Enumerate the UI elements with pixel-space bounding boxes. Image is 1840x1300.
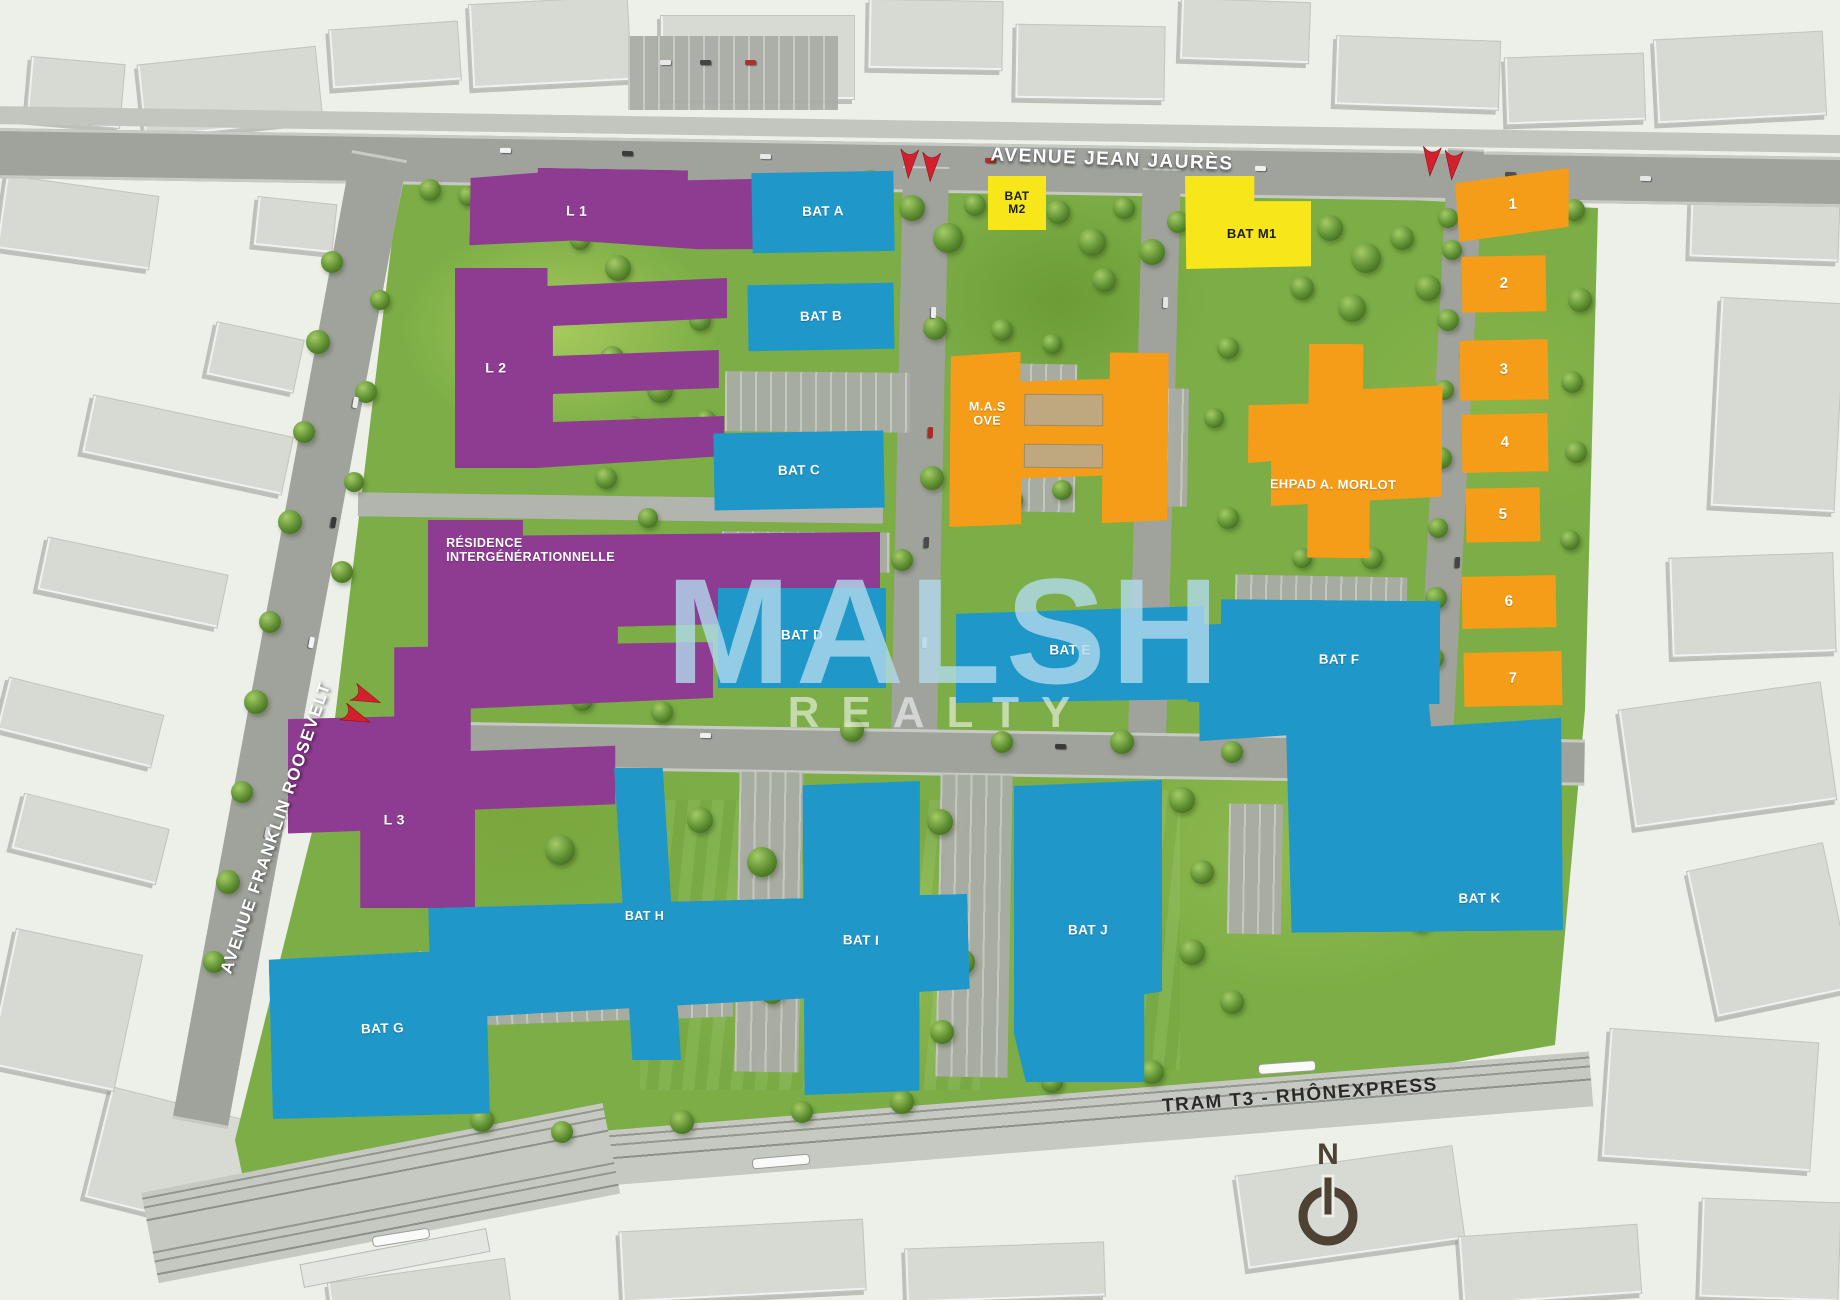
- tree: [370, 290, 390, 310]
- building-lot-5: 5: [1466, 487, 1541, 542]
- city-building: [253, 196, 338, 254]
- tree: [1428, 518, 1448, 538]
- car: [928, 427, 933, 438]
- tree: [1052, 480, 1072, 500]
- tree: [638, 508, 658, 528]
- building-lot-7: 7: [1464, 651, 1563, 707]
- city-building: [10, 793, 170, 886]
- car: [931, 307, 936, 318]
- building-bat-b: BAT B: [747, 283, 894, 352]
- tree: [1290, 276, 1314, 300]
- tree: [344, 472, 364, 492]
- tree: [1565, 441, 1587, 463]
- tree: [890, 1090, 914, 1114]
- tree: [259, 611, 281, 633]
- city-building: [1618, 681, 1838, 828]
- tree: [278, 510, 302, 534]
- tree: [595, 467, 617, 489]
- parking-lot: [628, 36, 838, 110]
- tree: [1190, 860, 1214, 884]
- tree: [1179, 939, 1205, 965]
- watermark-tagline: REALTY: [788, 688, 1093, 738]
- tree: [899, 195, 925, 221]
- north-label: N: [1296, 1138, 1360, 1172]
- city-building: [1668, 552, 1836, 658]
- building-l2: L 2: [455, 268, 727, 468]
- city-building: [1334, 35, 1501, 111]
- tree: [551, 1121, 573, 1143]
- tree: [605, 255, 631, 281]
- city-building: [618, 1219, 866, 1300]
- building-bat-a: BAT A: [751, 171, 894, 253]
- city-building: [0, 175, 159, 271]
- tree: [419, 179, 441, 201]
- car: [1640, 176, 1651, 181]
- car: [1455, 557, 1461, 568]
- building-bat-m2: BAT M2: [988, 176, 1046, 230]
- building-bat-j: BAT J: [1014, 780, 1162, 1082]
- tree: [670, 1110, 694, 1134]
- car: [1255, 166, 1266, 171]
- tree: [923, 316, 947, 340]
- city-building: [0, 676, 164, 768]
- car: [700, 733, 711, 738]
- tree: [1415, 275, 1441, 301]
- city-building: [1458, 1224, 1642, 1300]
- north-compass-icon: [1296, 1172, 1360, 1248]
- tree: [1568, 288, 1592, 312]
- tree: [1442, 240, 1462, 260]
- tree: [1351, 243, 1381, 273]
- building-lot-4: 4: [1462, 413, 1549, 472]
- city-building: [1504, 53, 1646, 126]
- city-building: [205, 321, 304, 394]
- tree: [1042, 334, 1062, 354]
- car: [1055, 744, 1066, 749]
- city-building: [1653, 31, 1827, 125]
- car: [1163, 297, 1168, 308]
- tree: [791, 1101, 813, 1123]
- masterplan-map: L 1 L 2 RÉSIDENCE INTERGÉNÉRATIONNELLE L…: [0, 0, 1840, 1300]
- tree: [1110, 730, 1134, 754]
- tree: [1204, 408, 1224, 428]
- tree: [1113, 197, 1135, 219]
- tree: [964, 194, 986, 216]
- car: [700, 60, 711, 65]
- tree: [1078, 228, 1106, 256]
- building-lot-3: 3: [1459, 339, 1548, 401]
- tree: [1169, 787, 1195, 813]
- tree: [216, 870, 240, 894]
- tree: [747, 847, 777, 877]
- car: [745, 60, 756, 65]
- tree: [920, 466, 944, 490]
- building-lot-2: 2: [1462, 255, 1547, 312]
- tree: [1139, 239, 1165, 265]
- tree: [1390, 226, 1414, 250]
- tree: [1217, 507, 1239, 529]
- tree: [1560, 530, 1580, 550]
- city-building: [1686, 842, 1840, 1018]
- courtyard-structure: [1024, 394, 1103, 426]
- city-building: [36, 536, 228, 628]
- tree: [1217, 337, 1239, 359]
- tree: [1046, 200, 1070, 224]
- city-building: [867, 0, 1003, 71]
- city-building: [328, 21, 462, 90]
- tree: [930, 1020, 954, 1044]
- tree: [1438, 208, 1458, 228]
- city-building: [1710, 297, 1840, 513]
- access-arrows-icon: [1417, 144, 1472, 182]
- city-building: [1179, 0, 1311, 64]
- car: [500, 148, 511, 153]
- city-building: [468, 0, 632, 89]
- parking-lot: [725, 371, 911, 433]
- tree: [231, 781, 253, 803]
- tree: [244, 690, 268, 714]
- tree: [321, 251, 343, 273]
- city-building: [0, 928, 143, 1092]
- access-arrows-icon: [895, 147, 949, 184]
- tree: [1317, 215, 1343, 241]
- city-building: [1014, 24, 1165, 102]
- car: [660, 60, 671, 65]
- building-bat-i: BAT I: [797, 779, 924, 1097]
- city-building: [1601, 1028, 1820, 1172]
- compass: N: [1296, 1138, 1360, 1253]
- car: [760, 154, 771, 159]
- city-building: [81, 394, 294, 495]
- tree: [933, 223, 963, 253]
- tree: [1561, 371, 1583, 393]
- building-bat-c: BAT C: [713, 431, 884, 511]
- tree: [927, 809, 953, 835]
- building-lot-6: 6: [1462, 575, 1557, 629]
- tree: [293, 421, 315, 443]
- tree: [306, 330, 330, 354]
- car: [622, 151, 633, 156]
- tree: [545, 835, 575, 865]
- city-building: [904, 1242, 1106, 1300]
- tree: [991, 319, 1013, 341]
- tree: [1220, 990, 1244, 1014]
- tree: [1338, 294, 1366, 322]
- city-building: [1698, 1198, 1840, 1300]
- tree: [1221, 741, 1243, 763]
- parking-lot: [1227, 804, 1283, 935]
- tree: [1437, 309, 1459, 331]
- tree: [1092, 268, 1116, 292]
- courtyard-structure: [1024, 443, 1103, 468]
- tree: [331, 561, 353, 583]
- tree: [687, 807, 713, 833]
